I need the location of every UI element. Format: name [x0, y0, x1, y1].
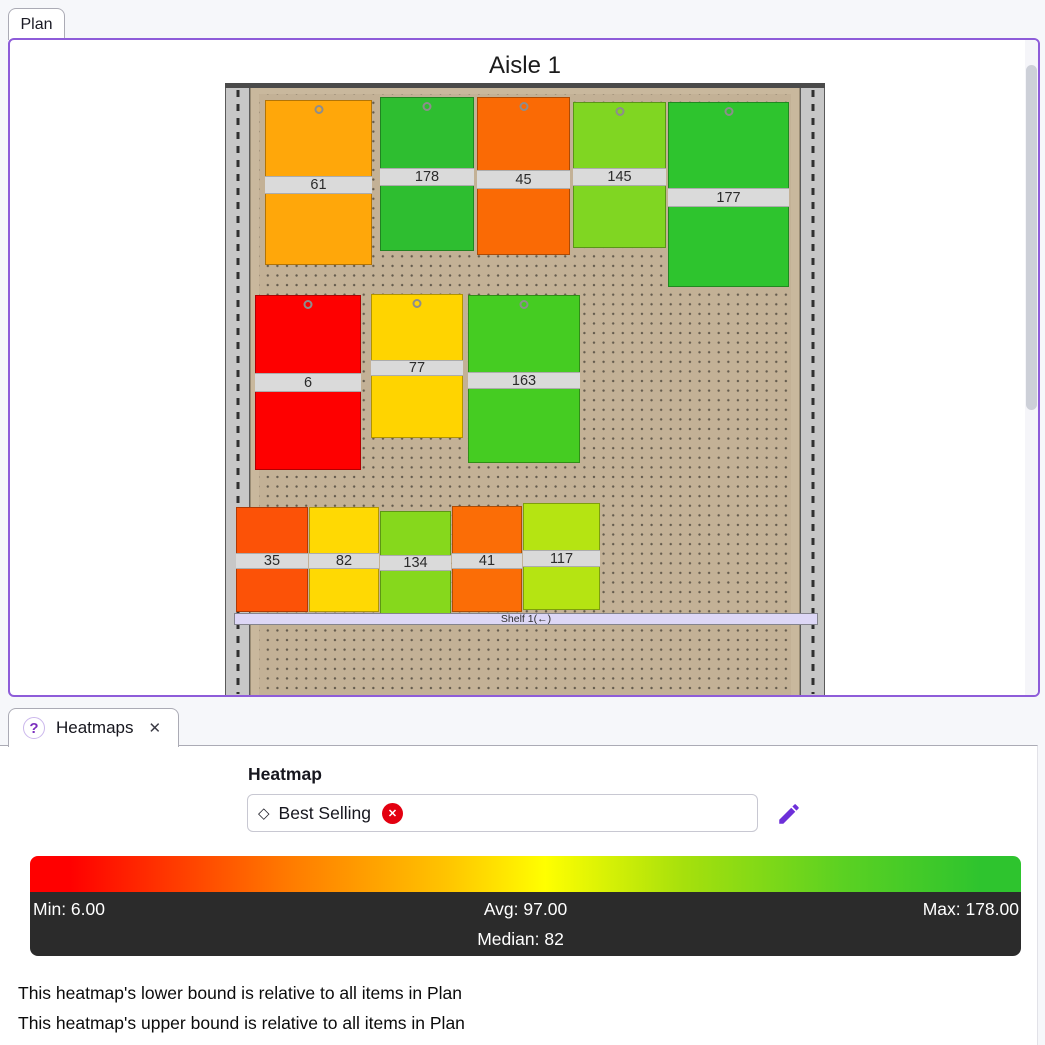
peg-hole-icon [519, 102, 528, 111]
stat-min: Min: 6.00 [33, 899, 105, 920]
heatmap-legend-stats: Min: 6.00 Avg: 97.00 Max: 178.00 Median:… [30, 892, 1021, 956]
product-facing[interactable]: 77 [371, 294, 463, 438]
product-facing[interactable]: 178 [380, 97, 474, 251]
product-facing[interactable]: 35 [236, 507, 308, 612]
peg-hole-icon [314, 105, 323, 114]
product-facing[interactable]: 45 [477, 97, 570, 255]
heatmap-field-label: Heatmap [248, 764, 322, 785]
stat-median: Median: 82 [477, 929, 564, 950]
heatmaps-panel: Heatmap ◇ Best Selling ✕ Min: 6.00 Avg: … [0, 745, 1038, 1045]
product-value-label: 77 [371, 360, 463, 376]
tab-heatmaps-label: Heatmaps [56, 718, 133, 738]
peg-hole-icon [304, 300, 313, 309]
product-value-label: 145 [573, 168, 666, 186]
tab-plan-label: Plan [20, 16, 52, 34]
peg-hole-icon [615, 107, 624, 116]
product-facing[interactable]: 82 [309, 507, 379, 612]
product-facing[interactable]: 61 [265, 100, 372, 265]
close-icon[interactable]: ✕ [148, 719, 161, 737]
tab-plan[interactable]: Plan [8, 8, 65, 40]
upright-right [800, 83, 825, 697]
scrollbar-track[interactable] [1025, 40, 1038, 695]
product-facing[interactable]: 145 [573, 102, 666, 248]
heatmap-selected-value: Best Selling [279, 803, 371, 824]
note-lower-bound: This heatmap's lower bound is relative t… [18, 983, 462, 1004]
peg-hole-icon [724, 107, 733, 116]
product-facing[interactable]: 6 [255, 295, 361, 470]
product-value-label: 6 [255, 373, 361, 392]
product-value-label: 134 [380, 555, 451, 571]
product-facing[interactable]: 134 [380, 511, 451, 614]
remove-heatmap-icon[interactable]: ✕ [382, 803, 403, 824]
product-value-label: 61 [265, 176, 372, 194]
product-value-label: 163 [468, 372, 580, 389]
product-facing[interactable]: 41 [452, 506, 522, 612]
product-facing[interactable]: 117 [523, 503, 600, 610]
product-facing[interactable]: 163 [468, 295, 580, 463]
edit-pencil-icon[interactable] [776, 801, 802, 827]
product-value-label: 177 [668, 188, 789, 207]
heatmap-legend-gradient [30, 856, 1021, 892]
stat-max: Max: 178.00 [923, 899, 1019, 920]
plan-panel: Aisle 1 Shelf 1(←) 611784514517767716335… [8, 38, 1040, 697]
product-value-label: 178 [380, 168, 474, 186]
shelf-1[interactable]: Shelf 1(←) [234, 613, 818, 625]
stat-avg: Avg: 97.00 [484, 899, 567, 920]
scrollbar-thumb[interactable] [1026, 65, 1037, 410]
selector-diamond-icon: ◇ [258, 804, 270, 822]
product-value-label: 41 [452, 553, 522, 569]
heatmap-select[interactable]: ◇ Best Selling ✕ [247, 794, 758, 832]
fixture-top-rail [225, 83, 825, 88]
peg-hole-icon [520, 300, 529, 309]
product-facing[interactable]: 177 [668, 102, 789, 287]
product-value-label: 82 [309, 553, 379, 569]
upright-slots-icon [811, 90, 814, 694]
product-value-label: 117 [523, 550, 600, 567]
aisle-title: Aisle 1 [225, 52, 825, 80]
fixture: Shelf 1(←) 61178451451776771633582134411… [225, 83, 825, 697]
tab-heatmaps[interactable]: ? Heatmaps ✕ [8, 708, 179, 747]
note-upper-bound: This heatmap's upper bound is relative t… [18, 1013, 465, 1034]
help-icon[interactable]: ? [23, 717, 45, 739]
shelf-label: Shelf 1(←) [501, 614, 551, 625]
peg-hole-icon [413, 299, 422, 308]
product-value-label: 45 [477, 170, 570, 189]
peg-hole-icon [423, 102, 432, 111]
product-value-label: 35 [236, 553, 308, 569]
